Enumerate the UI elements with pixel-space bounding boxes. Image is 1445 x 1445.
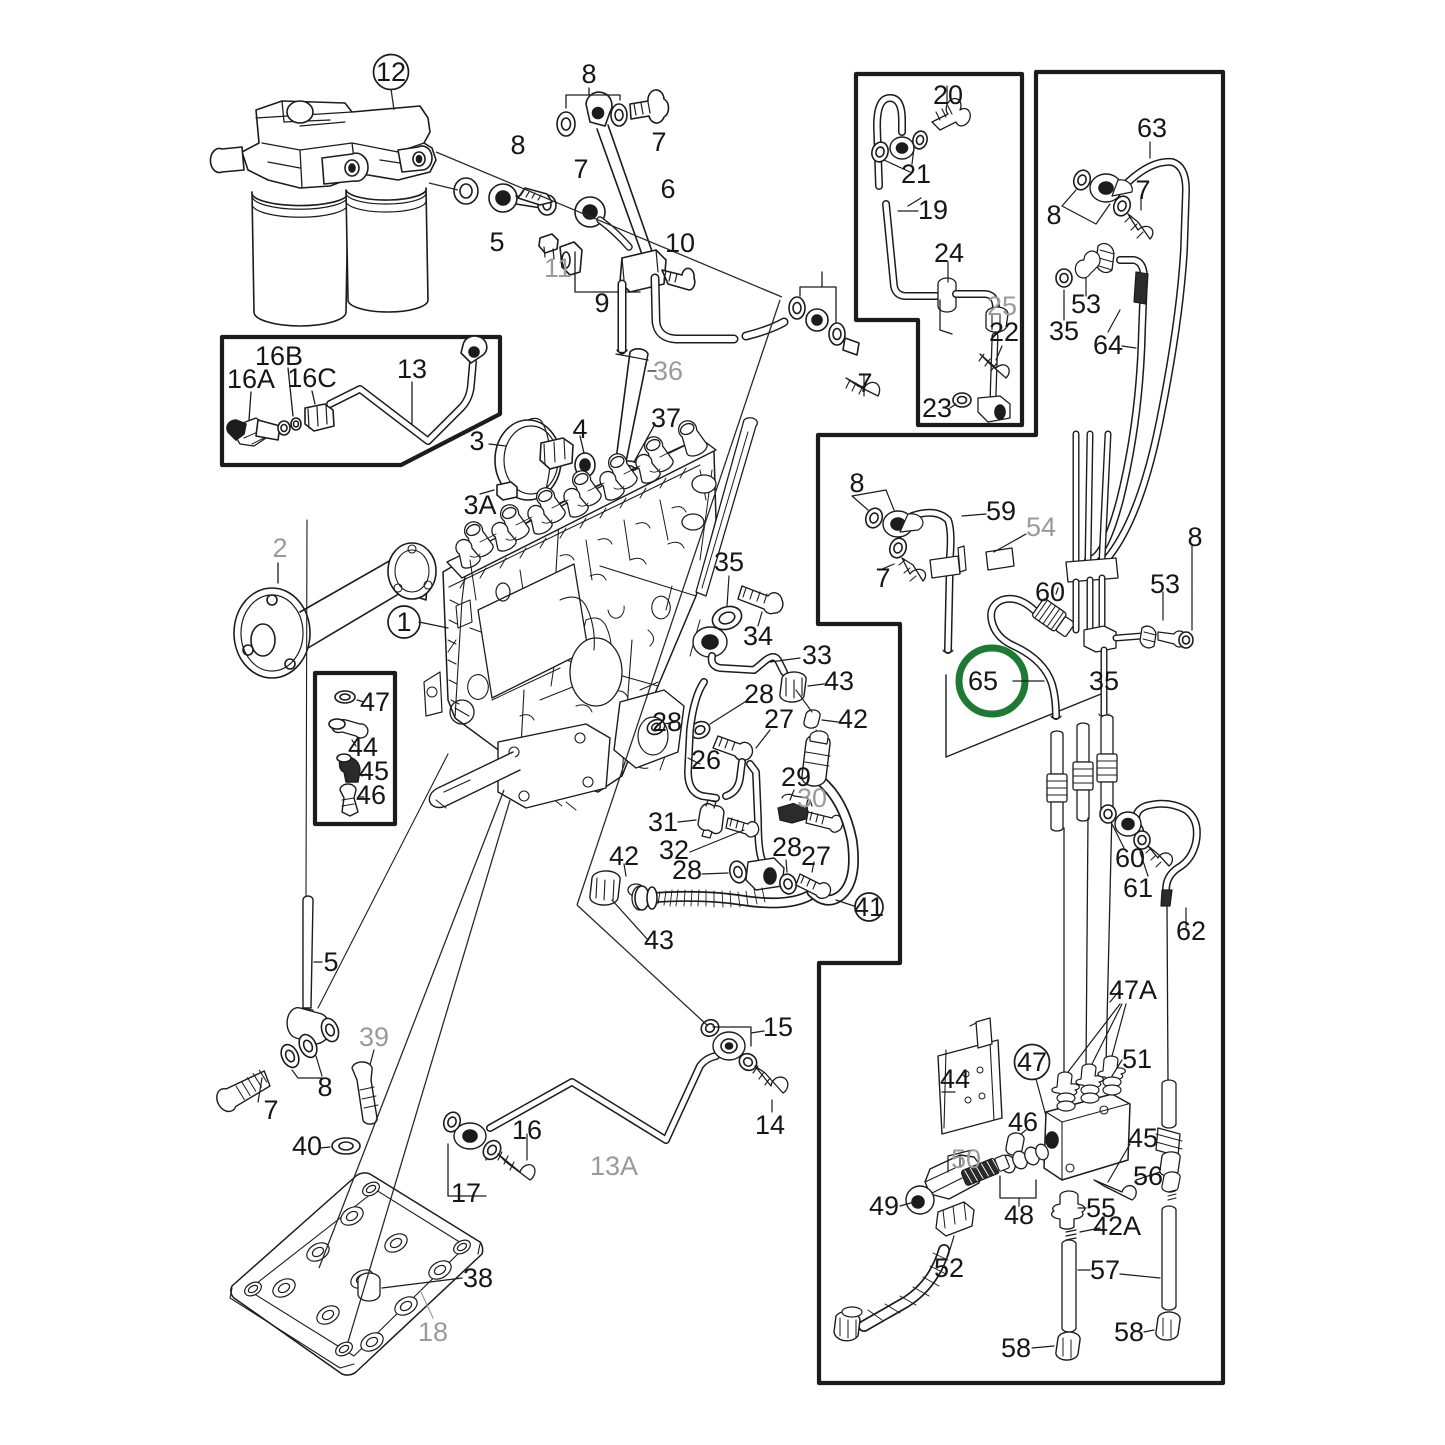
svg-text:18: 18	[418, 1317, 448, 1347]
svg-text:39: 39	[359, 1022, 389, 1052]
svg-text:58: 58	[1114, 1317, 1144, 1347]
svg-text:59: 59	[986, 496, 1016, 526]
svg-text:50: 50	[951, 1144, 981, 1174]
svg-text:51: 51	[1122, 1044, 1152, 1074]
svg-text:4: 4	[572, 414, 587, 444]
svg-text:24: 24	[934, 238, 964, 268]
svg-text:40: 40	[292, 1131, 322, 1161]
svg-text:20: 20	[933, 80, 963, 110]
svg-text:54: 54	[1026, 512, 1056, 542]
svg-text:35: 35	[1089, 666, 1119, 696]
svg-text:23: 23	[922, 393, 952, 423]
svg-text:64: 64	[1093, 330, 1123, 360]
svg-text:60: 60	[1035, 577, 1065, 607]
svg-text:3A: 3A	[463, 490, 496, 520]
svg-text:47A: 47A	[1109, 975, 1157, 1005]
svg-text:6: 6	[660, 174, 675, 204]
svg-text:8: 8	[510, 130, 525, 160]
svg-text:37: 37	[651, 403, 681, 433]
svg-text:9: 9	[594, 288, 609, 318]
svg-text:10: 10	[665, 228, 695, 258]
svg-text:28: 28	[652, 707, 682, 737]
svg-text:63: 63	[1137, 113, 1167, 143]
svg-text:12: 12	[376, 57, 406, 87]
svg-text:19: 19	[918, 195, 948, 225]
svg-text:3: 3	[469, 426, 484, 456]
svg-text:35: 35	[1049, 316, 1079, 346]
svg-text:47: 47	[360, 687, 390, 717]
svg-text:42: 42	[609, 841, 639, 871]
svg-text:13: 13	[397, 354, 427, 384]
svg-text:38: 38	[463, 1263, 493, 1293]
svg-text:17: 17	[451, 1178, 481, 1208]
svg-text:21: 21	[901, 159, 931, 189]
svg-text:57: 57	[1090, 1255, 1120, 1285]
svg-text:52: 52	[934, 1253, 964, 1283]
svg-text:28: 28	[672, 855, 702, 885]
svg-text:65: 65	[968, 666, 998, 696]
svg-text:8: 8	[1046, 200, 1061, 230]
svg-text:34: 34	[743, 621, 773, 651]
svg-text:22: 22	[989, 317, 1019, 347]
svg-text:7: 7	[1135, 175, 1150, 205]
svg-text:41: 41	[854, 892, 884, 922]
svg-text:62: 62	[1176, 916, 1206, 946]
svg-text:46: 46	[1008, 1107, 1038, 1137]
svg-text:1: 1	[396, 607, 411, 637]
svg-text:7: 7	[875, 563, 890, 593]
svg-text:46: 46	[356, 780, 386, 810]
svg-text:43: 43	[644, 925, 674, 955]
svg-text:45: 45	[1128, 1123, 1158, 1153]
svg-text:7: 7	[857, 368, 872, 398]
svg-text:5: 5	[323, 947, 338, 977]
svg-text:27: 27	[801, 841, 831, 871]
svg-text:16: 16	[512, 1115, 542, 1145]
svg-text:42: 42	[838, 704, 868, 734]
svg-text:48: 48	[1004, 1200, 1034, 1230]
svg-text:13A: 13A	[590, 1151, 638, 1181]
svg-text:58: 58	[1001, 1333, 1031, 1363]
svg-text:8: 8	[581, 59, 596, 89]
svg-text:61: 61	[1123, 873, 1153, 903]
svg-text:42A: 42A	[1093, 1211, 1141, 1241]
svg-text:47: 47	[1017, 1047, 1047, 1077]
svg-text:35: 35	[714, 547, 744, 577]
svg-text:7: 7	[263, 1095, 278, 1125]
svg-text:8: 8	[317, 1072, 332, 1102]
svg-text:53: 53	[1150, 569, 1180, 599]
svg-text:26: 26	[691, 745, 721, 775]
svg-text:53: 53	[1071, 289, 1101, 319]
svg-text:30: 30	[797, 783, 827, 813]
svg-text:43: 43	[824, 666, 854, 696]
svg-text:11: 11	[544, 253, 572, 283]
svg-text:8: 8	[849, 468, 864, 498]
svg-text:7: 7	[573, 154, 588, 184]
svg-text:27: 27	[764, 704, 794, 734]
svg-text:7: 7	[651, 127, 666, 157]
svg-text:16C: 16C	[287, 363, 337, 393]
svg-text:56: 56	[1133, 1161, 1163, 1191]
svg-text:2: 2	[272, 533, 287, 563]
svg-text:14: 14	[755, 1110, 785, 1140]
svg-text:44: 44	[940, 1064, 970, 1094]
svg-text:36: 36	[653, 356, 683, 386]
svg-text:31: 31	[648, 807, 678, 837]
svg-text:28: 28	[772, 832, 802, 862]
svg-text:49: 49	[869, 1191, 899, 1221]
svg-text:60: 60	[1115, 843, 1145, 873]
svg-text:8: 8	[1187, 522, 1202, 552]
svg-text:16A: 16A	[227, 364, 275, 394]
svg-text:15: 15	[763, 1012, 793, 1042]
svg-text:5: 5	[489, 227, 504, 257]
